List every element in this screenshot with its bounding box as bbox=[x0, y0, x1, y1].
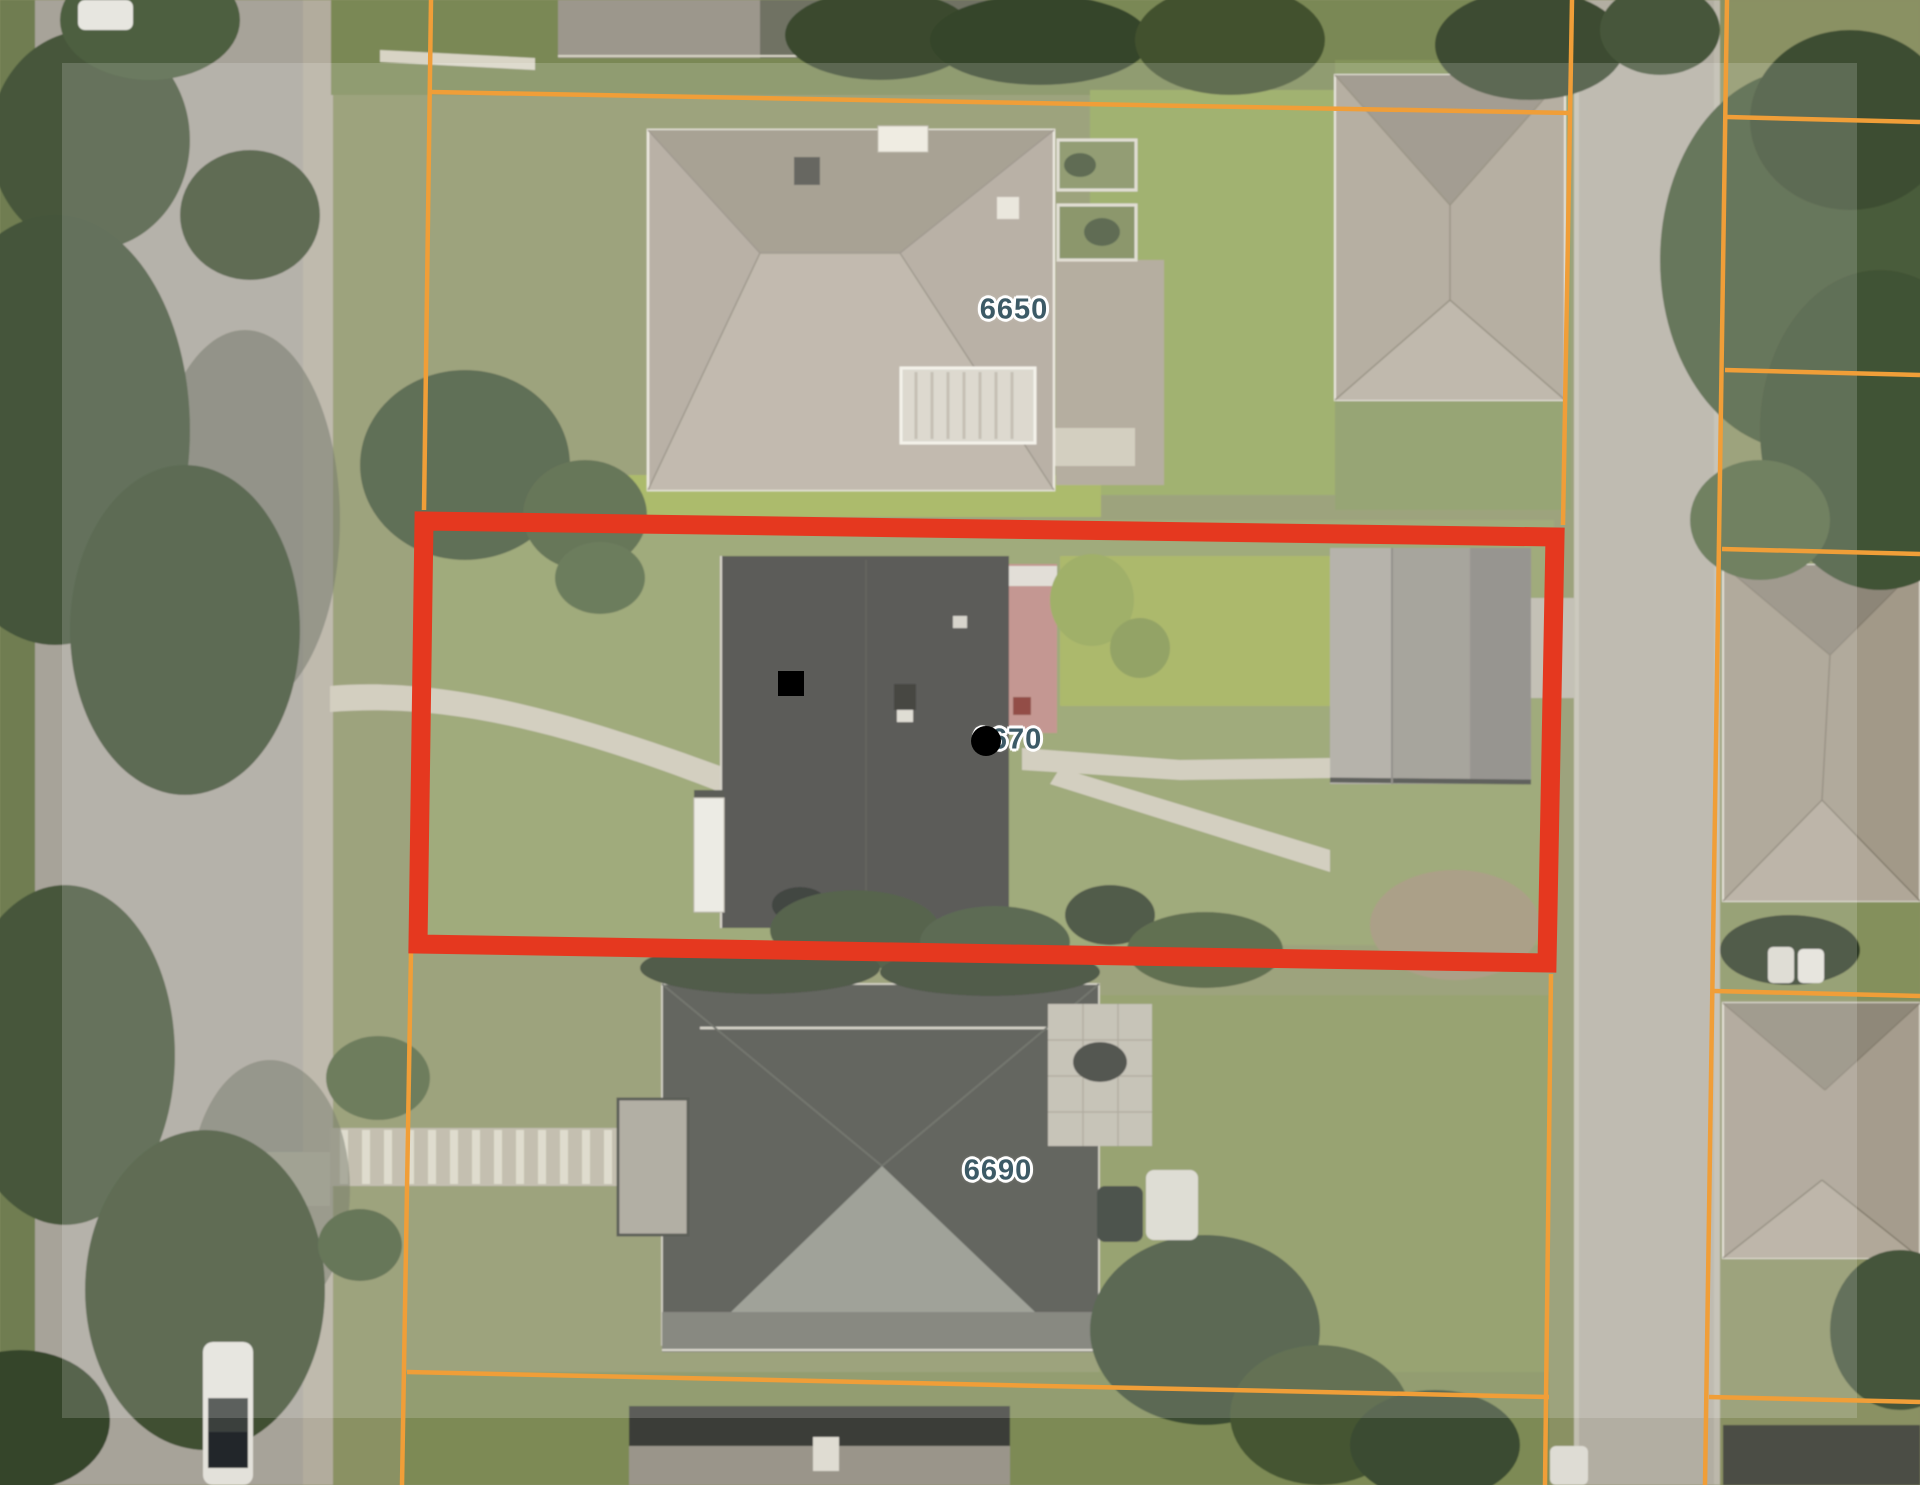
marker-dot bbox=[971, 726, 1001, 756]
white-haze-frame bbox=[62, 63, 1857, 1418]
marker-square bbox=[778, 671, 804, 696]
aerial-imagery bbox=[0, 0, 1920, 1485]
aerial-map-viewport[interactable]: 6650 6670 6690 bbox=[0, 0, 1920, 1485]
car bbox=[1550, 1446, 1588, 1485]
address-label-6690: 6690 bbox=[964, 1155, 1033, 1188]
house-corner-roof bbox=[1723, 1425, 1920, 1485]
car bbox=[78, 0, 133, 30]
address-label-6650: 6650 bbox=[980, 294, 1049, 327]
